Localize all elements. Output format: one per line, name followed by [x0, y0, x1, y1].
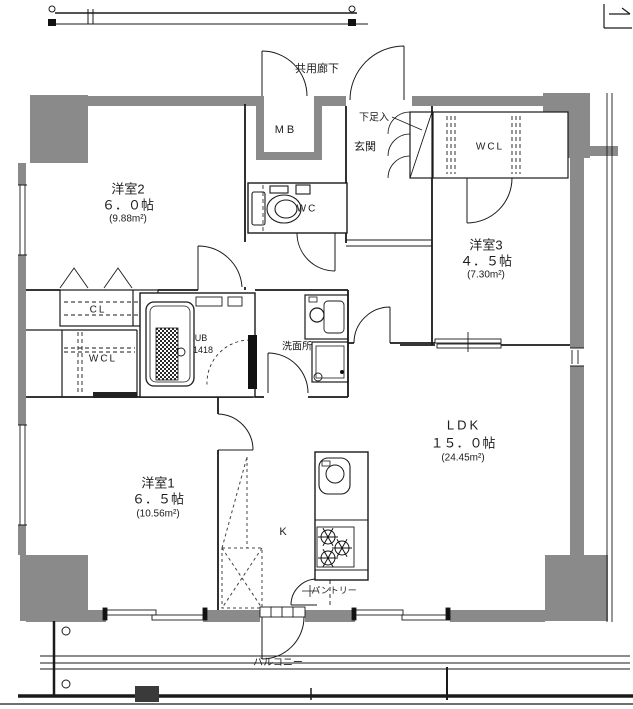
- room-yoshitsu2-size: ６．０帖: [102, 195, 154, 214]
- room-ldk-area: (24.45m²): [441, 453, 484, 464]
- washroom-label: 洗面所: [282, 338, 312, 353]
- wc-label: WC: [297, 204, 318, 215]
- balcony-railing: [0, 621, 633, 704]
- kitchen-label: K: [279, 526, 286, 538]
- corridor-railing: [48, 4, 632, 28]
- genkan-label: 玄関: [354, 138, 376, 154]
- wcl-upper-door: [467, 178, 512, 223]
- wcl-lower: [26, 330, 137, 397]
- wc-door: [297, 233, 335, 271]
- pantry-label: パントリー: [311, 584, 356, 597]
- room-ldk-size: １５．０帖: [430, 433, 495, 452]
- bath-door: [248, 335, 257, 389]
- room-yoshitsu3-area: (7.30m²): [467, 270, 505, 281]
- wcl-upper-label: WCL: [476, 142, 504, 153]
- room-yoshitsu3-size: ４．５帖: [460, 251, 512, 270]
- entrance-door: [350, 46, 404, 100]
- ub-label: UB: [195, 333, 208, 343]
- floorplan: 共用廊下 MB 下足入 玄関 WC WCL CL WCL UB 1418 洗面所…: [0, 0, 633, 709]
- yoshitsu2-door: [198, 246, 242, 290]
- room-yoshitsu2-area: (9.88m²): [109, 214, 147, 225]
- wcl-lower-label: WCL: [89, 354, 117, 365]
- ub-size-label: 1418: [193, 345, 213, 355]
- refrigerator-space: [222, 457, 262, 608]
- hall-ldk-door: [354, 307, 390, 343]
- corridor-label: 共用廊下: [295, 60, 339, 76]
- room-yoshitsu1-area: (10.56m²): [136, 509, 179, 520]
- shoe-cabinet-label: 下足入: [359, 109, 389, 124]
- room-yoshitsu1-size: ６．５帖: [132, 489, 184, 508]
- cl-label: CL: [90, 305, 107, 316]
- bifold-doors: [60, 268, 132, 288]
- mb-label: MB: [275, 124, 298, 136]
- room-ldk-name: LDK: [447, 418, 481, 433]
- genkan-step: [346, 240, 432, 246]
- yoshitsu1-door: [218, 414, 253, 450]
- washing-machine-icon: [312, 342, 348, 382]
- vanity-sink-icon: [305, 295, 348, 339]
- washroom-door: [268, 353, 308, 393]
- balcony-label: バルコニー: [253, 654, 303, 669]
